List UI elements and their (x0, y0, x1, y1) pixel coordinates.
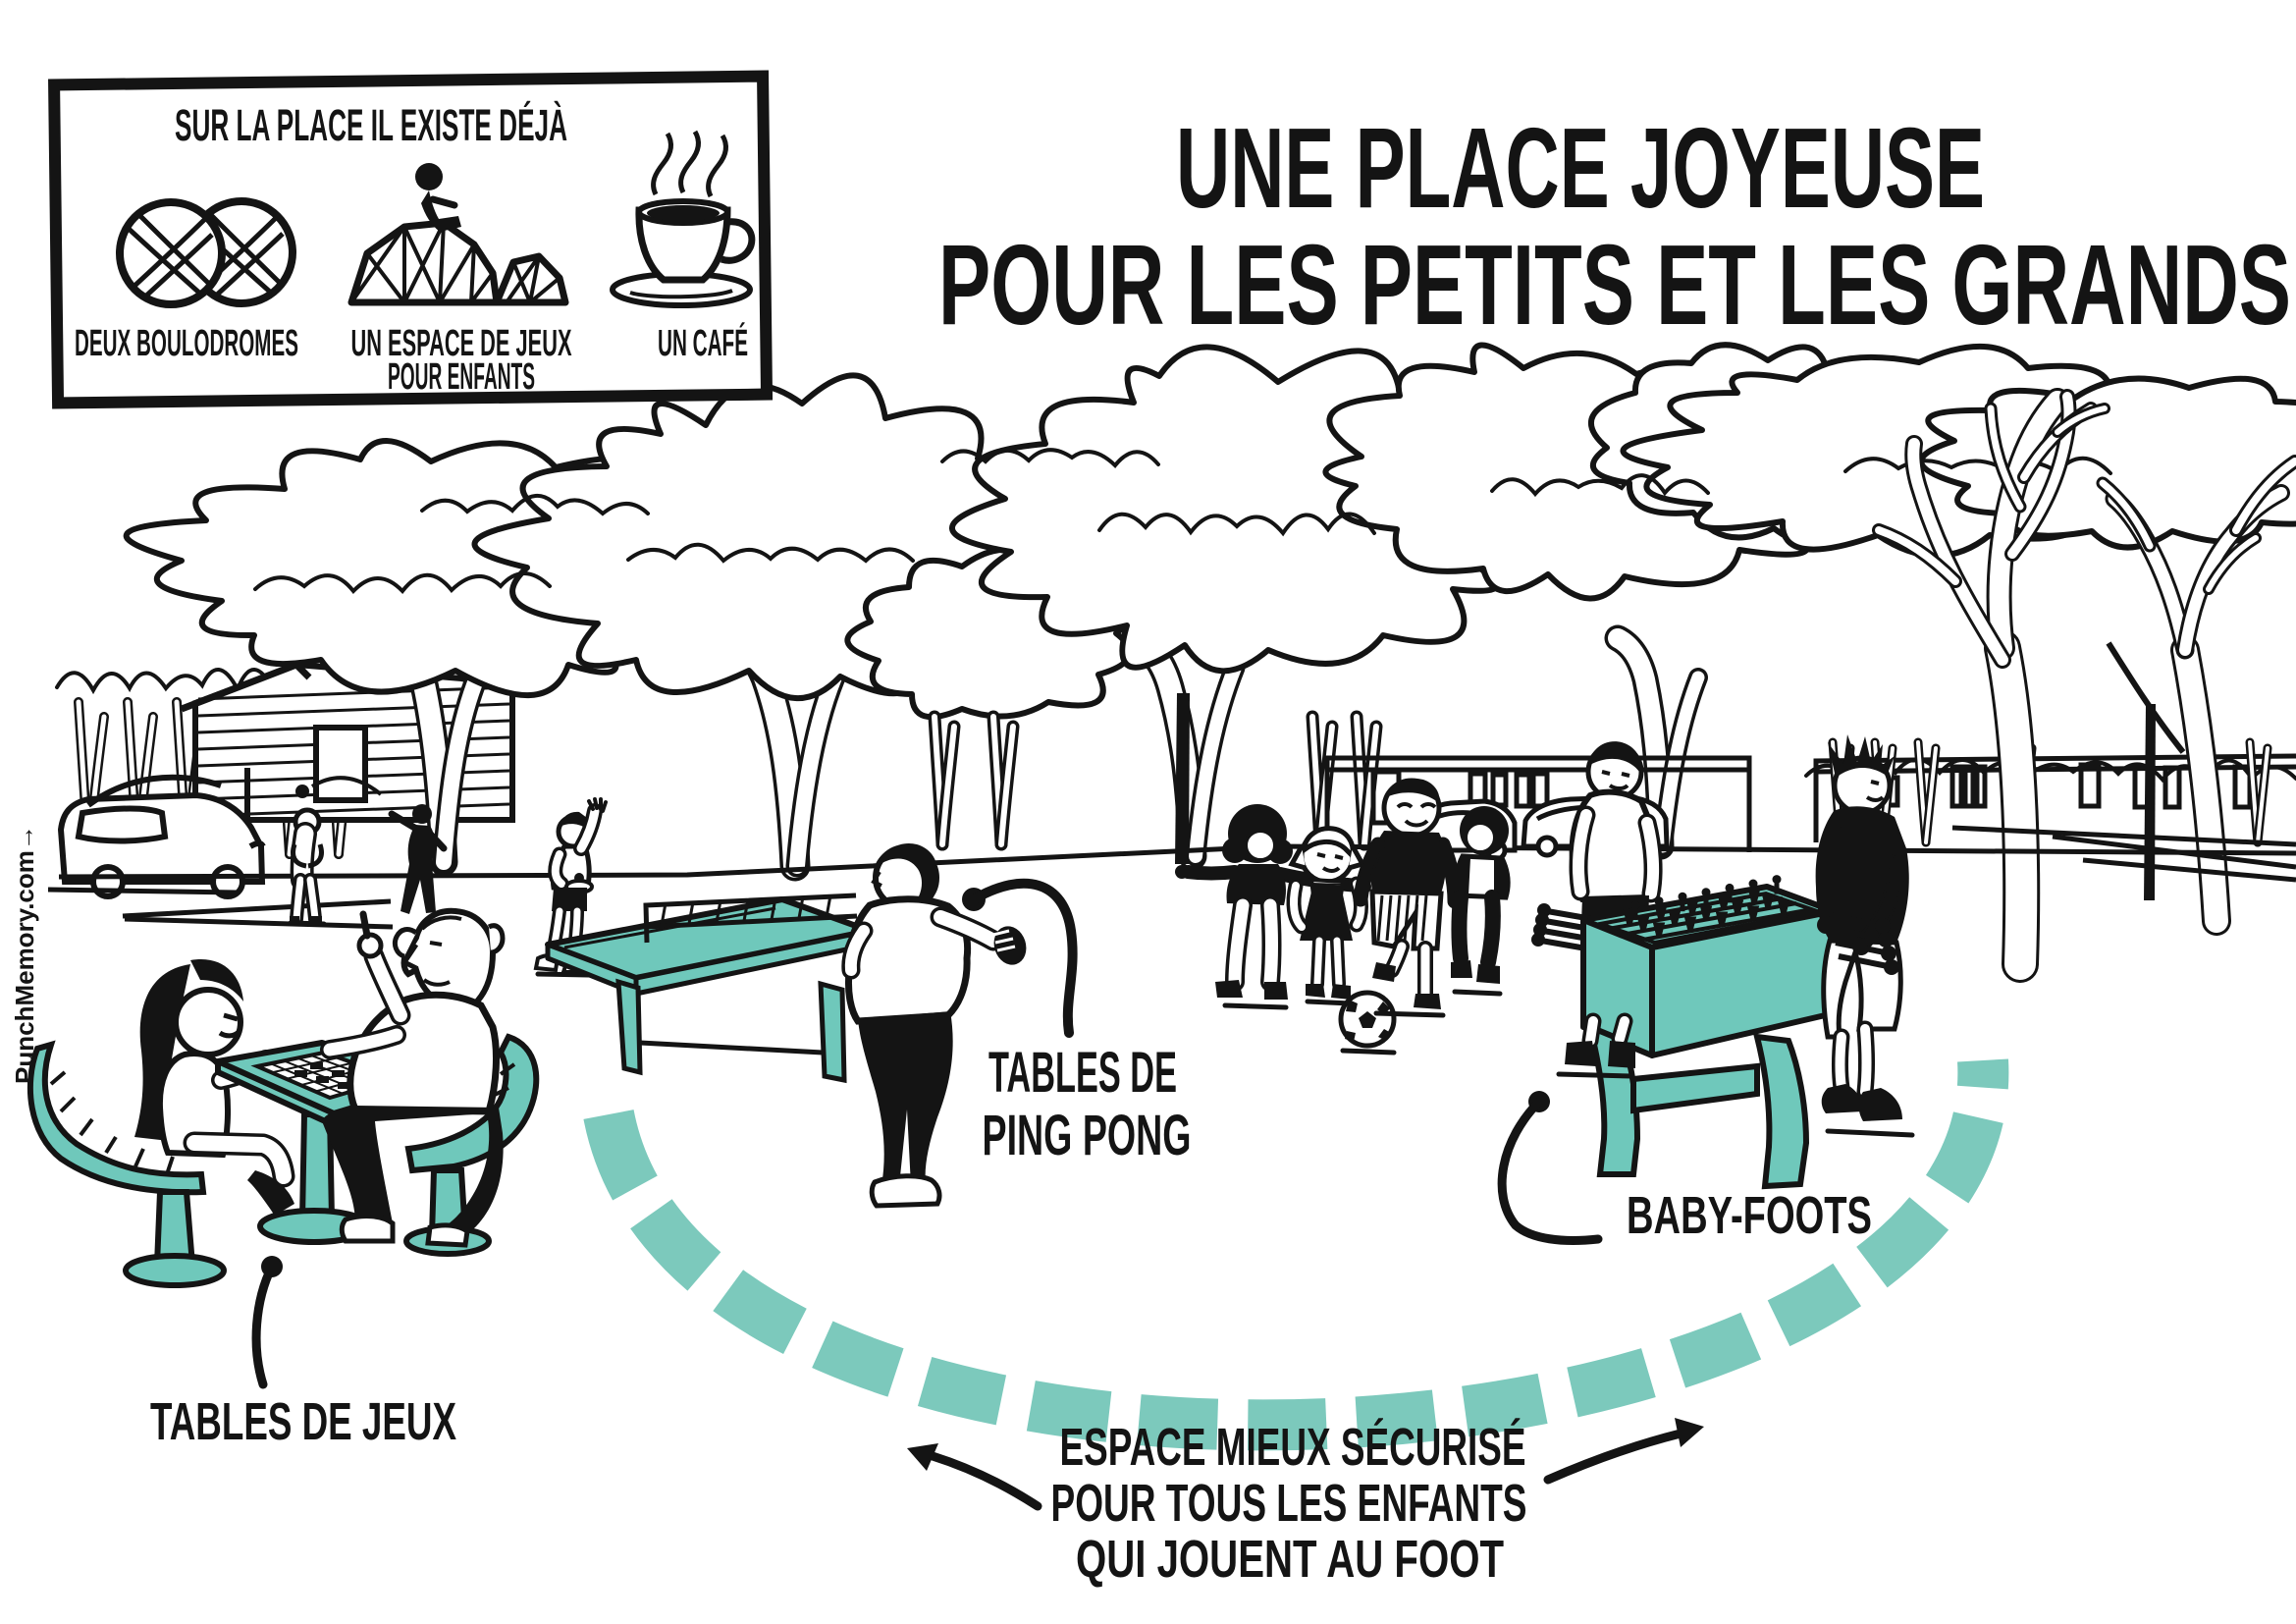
svg-text:ESPACE MIEUX SÉCURISÉ: ESPACE MIEUX SÉCURISÉ (1060, 1418, 1526, 1477)
svg-text:TABLES DE: TABLES DE (988, 1041, 1177, 1105)
svg-text:UNE PLACE JOYEUSE: UNE PLACE JOYEUSE (1176, 104, 1985, 232)
svg-text:TABLES DE JEUX: TABLES DE JEUX (150, 1392, 456, 1451)
svg-text:BABY-FOOTS: BABY-FOOTS (1627, 1186, 1872, 1245)
svg-text:POUR LES PETITS ET LES GRANDS: POUR LES PETITS ET LES GRANDS (938, 221, 2291, 349)
svg-text:QUI JOUENT AU FOOT: QUI JOUENT AU FOOT (1076, 1530, 1504, 1589)
svg-text:POUR TOUS LES ENFANTS: POUR TOUS LES ENFANTS (1051, 1474, 1527, 1533)
svg-text:DEUX BOULODROMES: DEUX BOULODROMES (75, 323, 298, 364)
svg-text:PunchMemory.com→: PunchMemory.com→ (10, 825, 39, 1084)
svg-text:UN CAFÉ: UN CAFÉ (658, 321, 748, 364)
svg-text:POUR ENFANTS: POUR ENFANTS (388, 356, 535, 398)
svg-text:PING PONG: PING PONG (983, 1104, 1192, 1167)
svg-text:SUR LA PLACE IL EXISTE DÉJÀ: SUR LA PLACE IL EXISTE DÉJÀ (175, 100, 567, 150)
